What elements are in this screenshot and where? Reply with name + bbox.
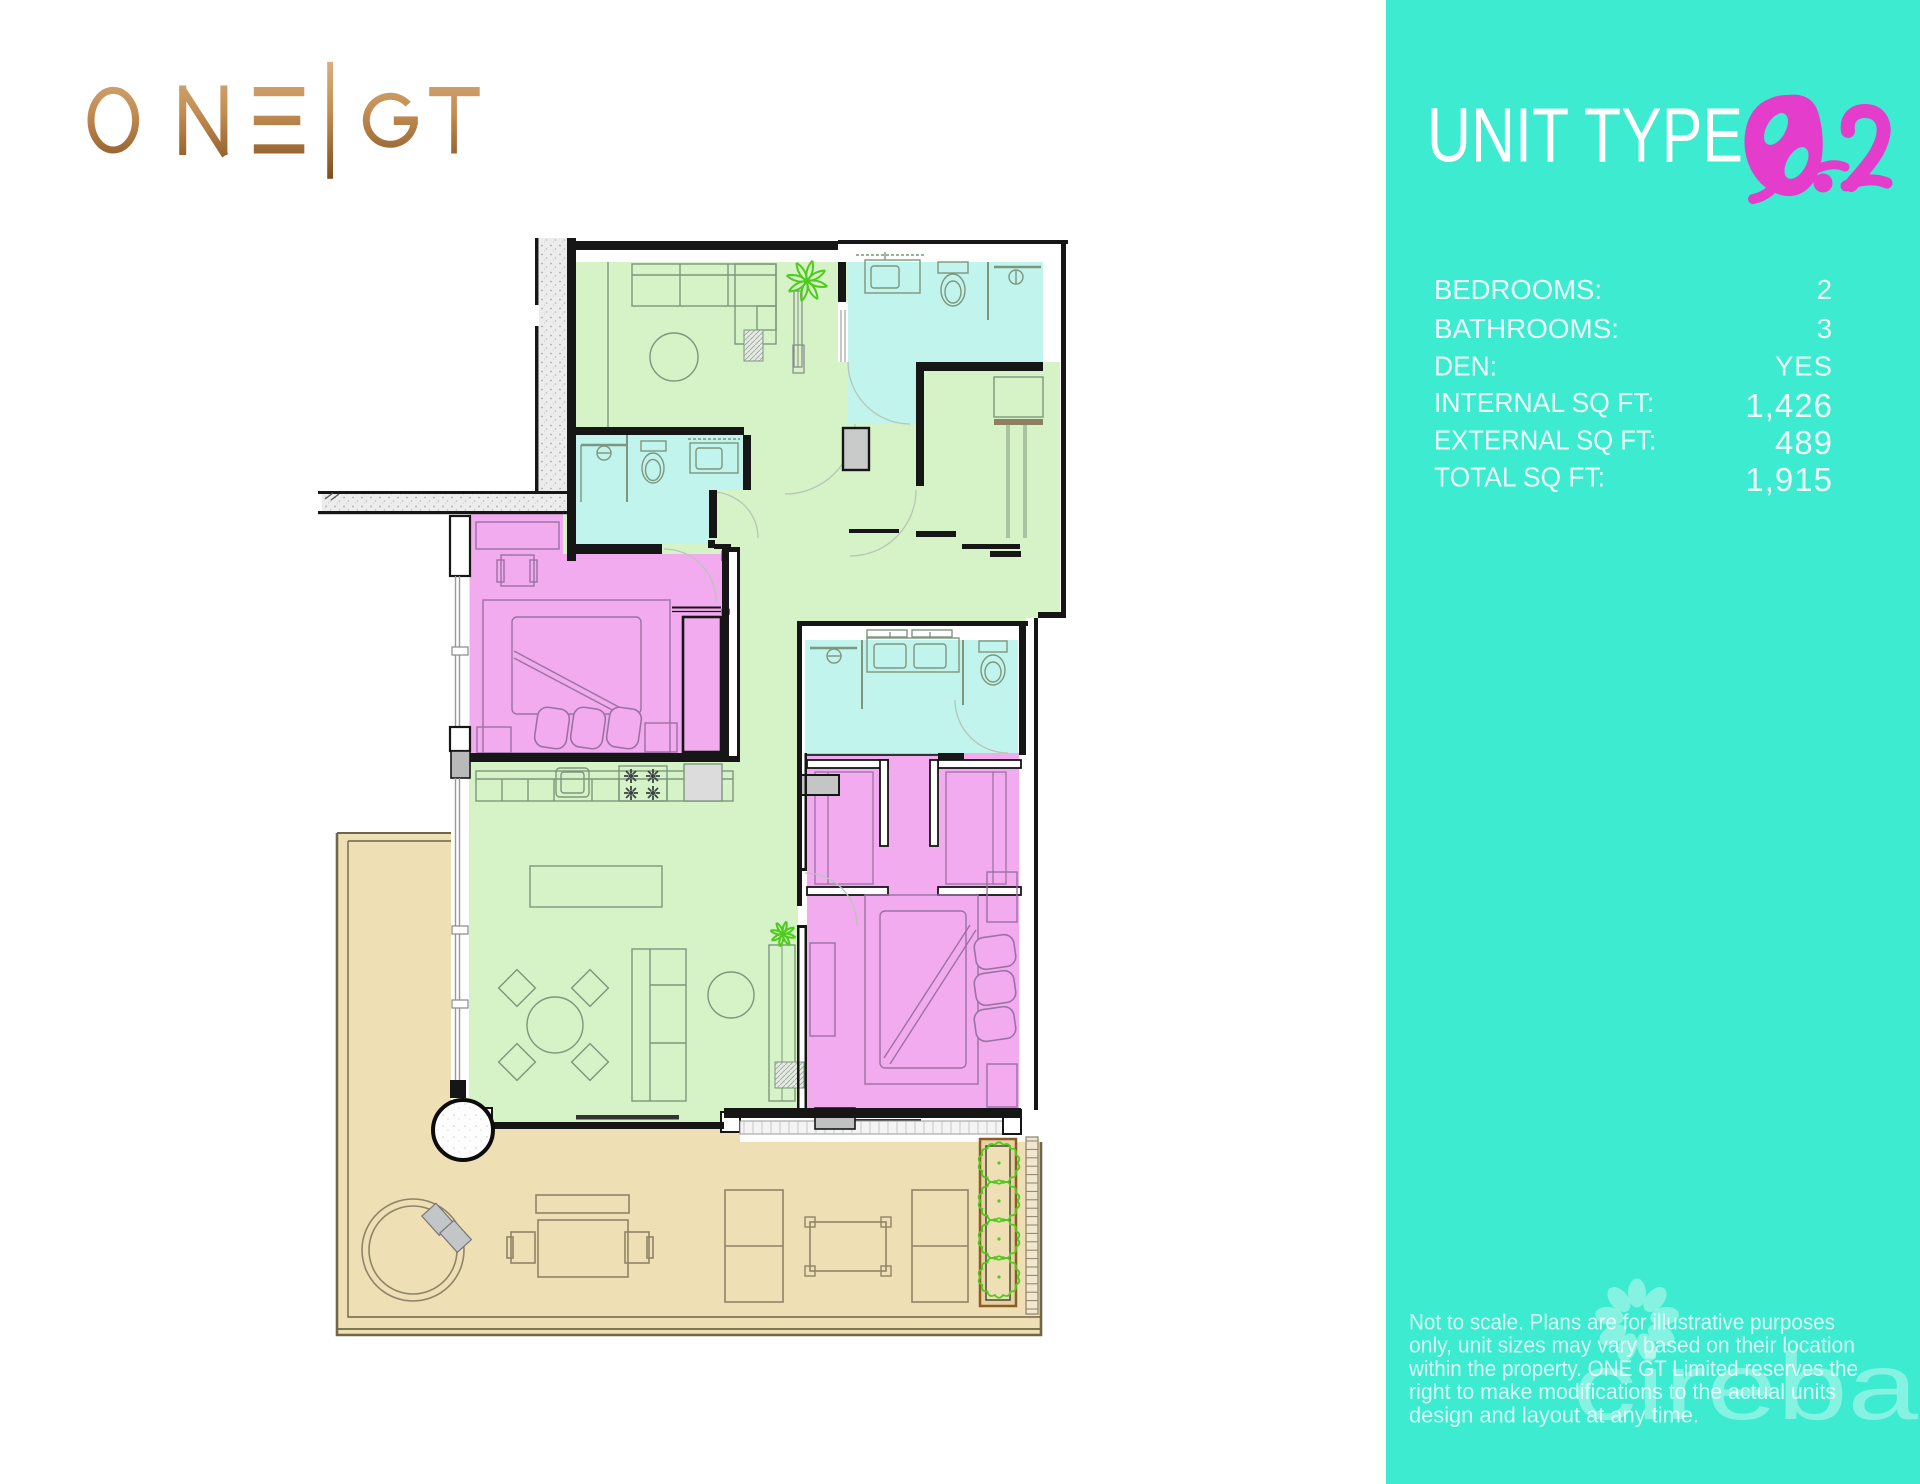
svg-text:INTERNAL SQ FT:: INTERNAL SQ FT: bbox=[1434, 387, 1654, 418]
svg-text:489: 489 bbox=[1775, 424, 1833, 461]
svg-text:only, unit sizes may vary base: only, unit sizes may vary based on their… bbox=[1409, 1333, 1855, 1358]
svg-text:1,915: 1,915 bbox=[1745, 461, 1833, 498]
svg-text:Not to scale. Plans are for il: Not to scale. Plans are for illustrative… bbox=[1409, 1310, 1835, 1335]
svg-text:YES: YES bbox=[1775, 351, 1833, 382]
svg-text:EXTERNAL SQ FT:: EXTERNAL SQ FT: bbox=[1434, 425, 1656, 456]
svg-text:BEDROOMS:: BEDROOMS: bbox=[1434, 274, 1602, 305]
svg-text:BATHROOMS:: BATHROOMS: bbox=[1434, 313, 1619, 344]
svg-text:TOTAL SQ FT:: TOTAL SQ FT: bbox=[1434, 462, 1605, 493]
svg-text:2: 2 bbox=[1817, 274, 1833, 305]
svg-text:within the property. ONE GT L: within the property. ONE GT Limited rese… bbox=[1408, 1356, 1858, 1381]
svg-text:UNIT TYPE: UNIT TYPE bbox=[1427, 93, 1743, 179]
svg-text:DEN:: DEN: bbox=[1434, 351, 1497, 382]
svg-text:3: 3 bbox=[1817, 313, 1833, 344]
svg-text:1,426: 1,426 bbox=[1745, 387, 1833, 424]
svg-text:right to make modifications to: right to make modifications to the actua… bbox=[1409, 1379, 1836, 1404]
svg-text:design and layout at any time.: design and layout at any time. bbox=[1409, 1402, 1699, 1427]
